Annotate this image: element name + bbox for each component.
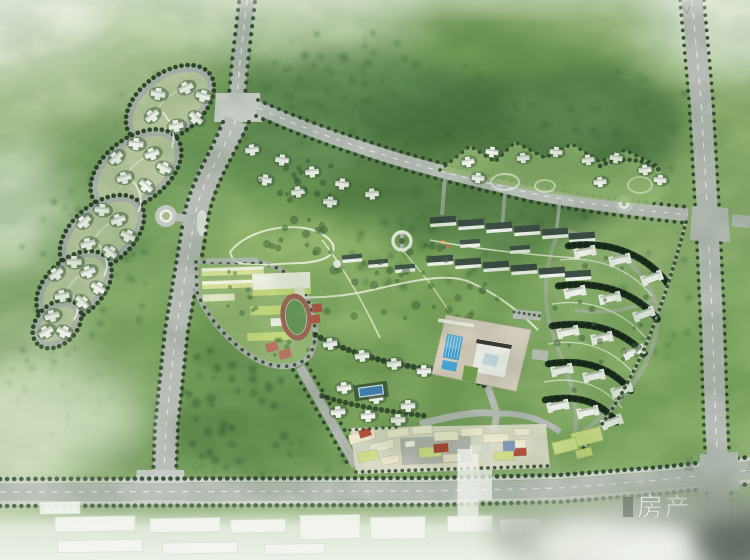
svg-text:房: 房 — [637, 492, 663, 522]
svg-text:V: V — [683, 5, 691, 17]
svg-text:产: 产 — [665, 494, 689, 521]
